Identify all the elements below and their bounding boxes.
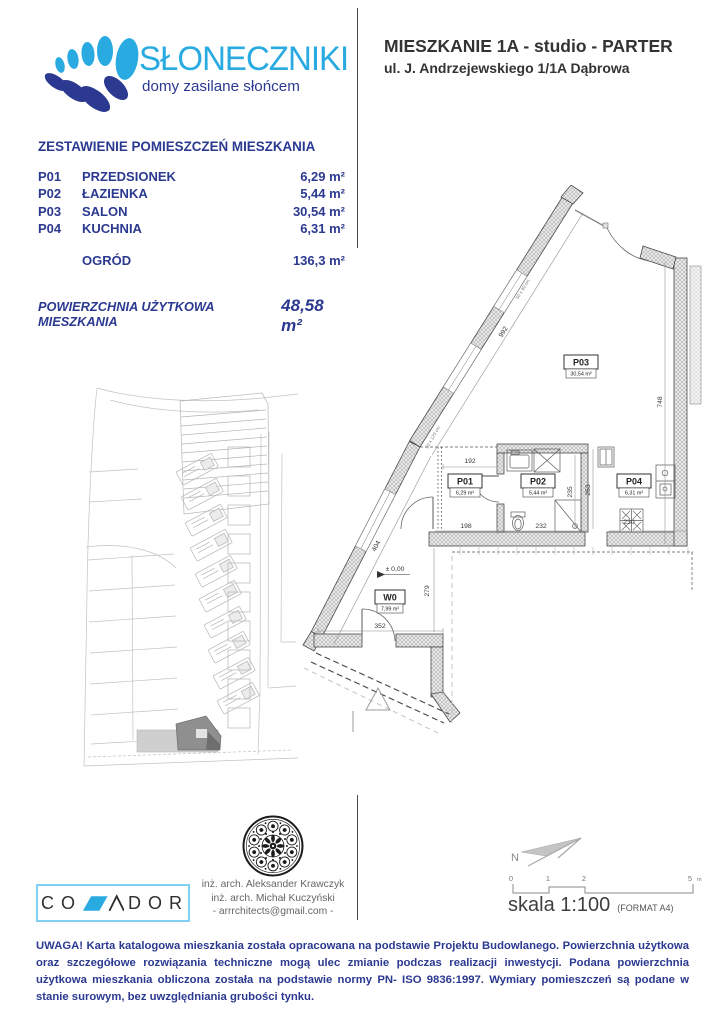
table-row: P04 KUCHNIA 6,31 m² (38, 221, 345, 238)
svg-text:P02: P02 (530, 477, 546, 487)
scale-format: (FORMAT A4) (617, 903, 673, 913)
svg-text:6,29 m²: 6,29 m² (456, 491, 474, 497)
table-row: P02 ŁAZIENKA 5,44 m² (38, 186, 345, 203)
table-gap (38, 238, 345, 253)
north-arrow-icon: N (511, 838, 581, 866)
dim-253: 253 (585, 484, 592, 496)
svg-text:P04: P04 (626, 477, 642, 487)
credit-line: inż. arch. Michał Kuczyński (175, 892, 371, 906)
site-plots-grid (88, 554, 178, 744)
shower (555, 500, 581, 532)
leaf-icon (42, 36, 141, 116)
total-area-row: POWIERZCHNIA UŻYTKOWA MIESZKANIA 48,58 m… (38, 296, 345, 336)
table-row: OGRÓD 136,3 m² (38, 253, 345, 270)
apartment-address: ul. J. Andrzejewskiego 1/1A Dąbrowa (384, 60, 630, 76)
apartment-title: MIESZKANIE 1A - studio - PARTER (384, 36, 673, 57)
dim-992: 992 (498, 325, 510, 339)
svg-text:P03: P03 (573, 358, 589, 368)
covador-letter: O (148, 893, 165, 914)
room-label-p04: P04 6,31 m² (617, 474, 651, 497)
dimension-lines (318, 213, 687, 644)
room-code: P01 (38, 169, 82, 184)
architect-credits: inż. arch. Aleksander Krawczyk inż. arch… (175, 878, 371, 919)
dim-748: 748 (657, 396, 664, 408)
room-name: SALON (82, 204, 293, 219)
catalog-page: SŁONECZNIKI domy zasilane słońcem MIESZK… (0, 0, 725, 1024)
room-name: KUCHNIA (82, 221, 300, 236)
room-code: P03 (38, 204, 82, 219)
svg-text:W0: W0 (383, 593, 397, 603)
entrance-marker (366, 688, 390, 710)
disclaimer-text: UWAGA! Karta katalogowa mieszkania zosta… (36, 938, 689, 1006)
mandala-logo-icon (241, 814, 305, 878)
room-label-p01: P01 6,29 m² (448, 474, 482, 497)
footer-divider (357, 795, 358, 920)
svg-text:0: 0 (509, 874, 513, 883)
level-marker: ± 0,00 (377, 566, 410, 578)
dim-404: 404 (371, 539, 382, 552)
svg-text:N: N (511, 852, 519, 864)
covador-mark-icon (82, 894, 124, 913)
credit-line: - arrrchitects@gmail.com - (175, 905, 371, 919)
svg-text:5: 5 (688, 874, 692, 883)
kitchen-sink-fridge (656, 465, 675, 498)
room-name: OGRÓD (82, 253, 293, 268)
covador-letter: C (41, 893, 57, 914)
svg-text:2: 2 (582, 874, 586, 883)
svg-text:6,31 m²: 6,31 m² (625, 491, 643, 497)
kitchen-counter (598, 447, 614, 467)
site-house-row (176, 453, 259, 714)
room-code: P02 (38, 186, 82, 201)
svg-text:1: 1 (546, 874, 550, 883)
entry-door-top (575, 210, 649, 261)
p01-door (401, 497, 433, 529)
covador-letter: D (128, 893, 144, 914)
rooms-table: P01 PRZEDSIONEK 6,29 m² P02 ŁAZIENKA 5,4… (38, 169, 345, 270)
table-row: P03 SALON 30,54 m² (38, 204, 345, 221)
neighbor-wall (690, 266, 701, 404)
walls (303, 185, 701, 722)
covador-logo: C O D O R (36, 884, 190, 922)
site-highlight-unit (137, 716, 221, 752)
room-label-w0: W0 7,99 m² (375, 590, 405, 613)
compass-scale: N 0 1 2 5 m (495, 826, 710, 898)
table-row: P01 PRZEDSIONEK 6,29 m² (38, 169, 345, 186)
room-code: P04 (38, 221, 82, 236)
doors (362, 210, 649, 641)
site-parking (180, 393, 269, 514)
room-area: 6,29 m² (300, 169, 345, 184)
svg-text:m: m (697, 877, 702, 883)
svg-text:7,99 m²: 7,99 m² (381, 607, 399, 613)
scale-label: skala 1:100 (508, 894, 610, 916)
floor-plan: 992 404 748 352 279 192 198 232 235 253 … (300, 185, 725, 745)
svg-text:5,44 m²: 5,44 m² (529, 491, 547, 497)
brand-leaves-logo (32, 28, 144, 116)
toilet (511, 512, 525, 531)
credit-line: inż. arch. Aleksander Krawczyk (175, 878, 371, 892)
svg-text:P01: P01 (457, 477, 473, 487)
site-plan (60, 382, 300, 772)
dim-279: 279 (424, 585, 431, 597)
total-area-label: POWIERZCHNIA UŻYTKOWA MIESZKANIA (38, 299, 281, 329)
room-name: ŁAZIENKA (82, 186, 300, 201)
svg-text:± 0,00: ± 0,00 (386, 566, 405, 573)
room-name: PRZEDSIONEK (82, 169, 300, 184)
room-label-p03: P03 30,54 m² (564, 355, 598, 378)
dim-230: 230 (623, 519, 635, 526)
brand-name: SŁONECZNIKI (139, 40, 348, 79)
scale-bar: 0 1 2 5 m (509, 874, 702, 893)
dim-235: 235 (567, 486, 574, 498)
covador-letter: O (61, 893, 78, 914)
rooms-table-title: ZESTAWIENIE POMIESZCZEŃ MIESZKANIA (38, 139, 315, 154)
scale-caption: skala 1:100(FORMAT A4) (508, 894, 673, 917)
dim-232: 232 (535, 523, 547, 530)
dim-198: 198 (460, 523, 472, 530)
svg-text:30,54 m²: 30,54 m² (570, 372, 591, 378)
site-roads (84, 388, 298, 766)
dim-352: 352 (374, 623, 386, 630)
room-label-p02: P02 5,44 m² (521, 474, 555, 497)
brand-tagline: domy zasilane słońcem (142, 78, 300, 95)
dim-192: 192 (464, 458, 476, 465)
